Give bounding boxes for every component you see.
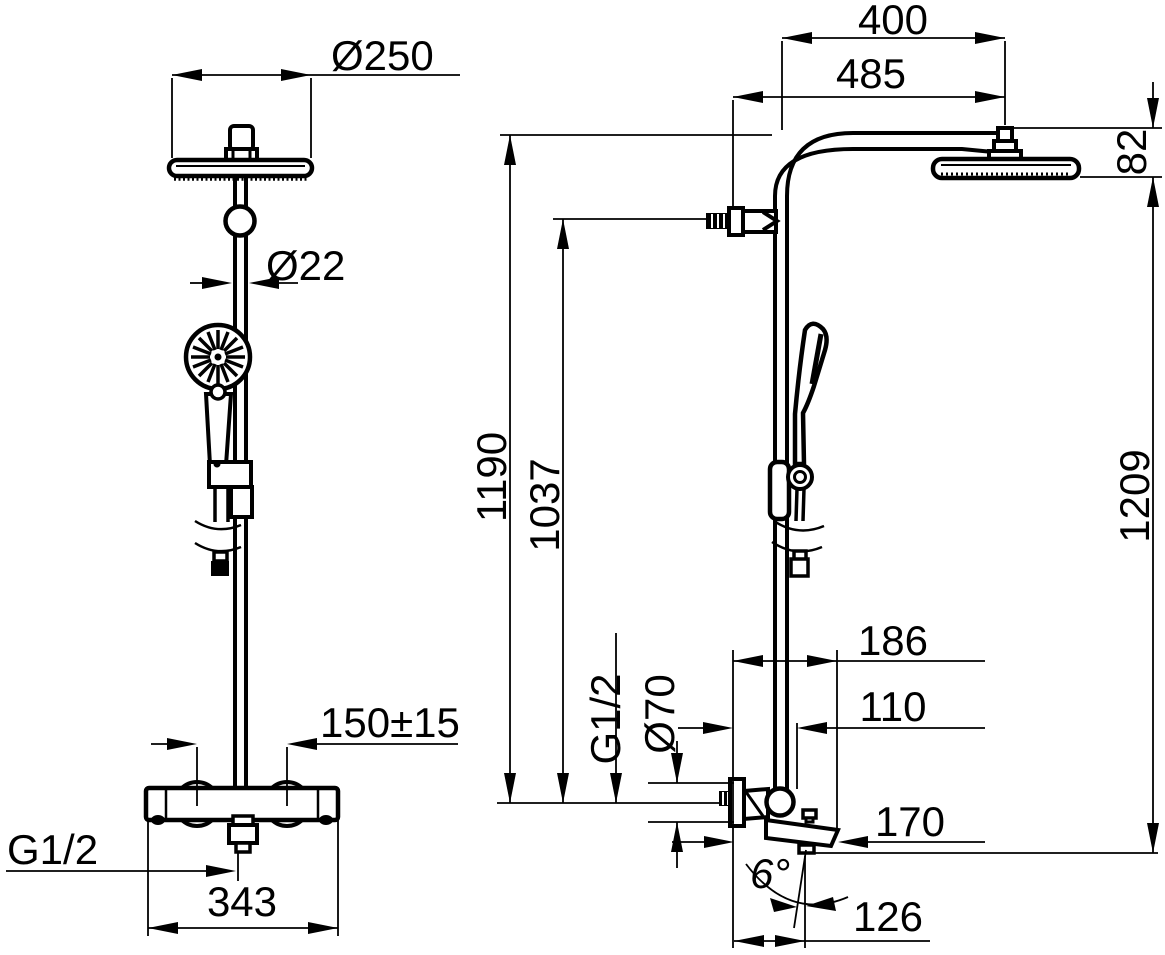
arrowhead	[202, 277, 232, 289]
dim-escutcheon-diameter: Ø70	[636, 674, 734, 868]
arrowhead	[807, 655, 837, 667]
dim-height-total: 1209	[1111, 177, 1159, 853]
dim-spout-angle: 6°	[746, 850, 848, 928]
valve-pipe-joint	[767, 789, 794, 816]
arrowhead	[308, 922, 338, 934]
arrowhead	[281, 69, 311, 81]
dim-arm-projection-total: 485	[733, 50, 1005, 206]
arrowhead	[733, 655, 763, 667]
arrowhead	[797, 722, 827, 734]
hand-shower-handle	[206, 394, 231, 465]
outlet-tip	[236, 843, 250, 852]
dim-spout-angle-label: 6°	[750, 850, 790, 897]
bath-spout	[766, 820, 838, 846]
arrowhead	[733, 91, 763, 103]
dim-height-to-arm-label: 1190	[468, 432, 515, 522]
dim-spout-depth-mid: 110	[678, 683, 985, 789]
dim-outlet-thread-front-label: G1/2	[7, 826, 98, 873]
hose-end-cone-side	[791, 559, 808, 576]
holder-ring-inner	[795, 472, 806, 483]
dim-spout-depth-top-label: 186	[858, 617, 928, 664]
holder-pin	[214, 461, 221, 468]
head-connector	[230, 126, 253, 150]
arrowhead	[671, 822, 683, 852]
shower-head-disc	[169, 160, 312, 176]
dim-escutcheon-diameter-label: Ø70	[636, 674, 683, 753]
mixer-foot	[319, 815, 333, 825]
technical-drawing: Ø250 Ø22 150±15 G1/2 343	[0, 0, 1165, 955]
arrowhead	[703, 722, 733, 734]
holder-bracket-side	[770, 462, 789, 519]
arrowhead	[504, 773, 516, 803]
wall-pipe	[743, 211, 776, 232]
wall-flange	[729, 208, 743, 235]
dim-arm-projection-label: 400	[858, 0, 928, 43]
arrowhead	[167, 738, 197, 750]
arrowhead	[1147, 823, 1159, 853]
arrowhead	[504, 135, 516, 165]
dim-pipe-diameter: Ø22	[190, 242, 345, 289]
dim-height-to-inlet-label: 1037	[521, 458, 568, 551]
mixer-foot	[151, 815, 165, 825]
arrowhead	[975, 32, 1005, 44]
arrowhead	[557, 773, 569, 803]
hose-side	[803, 489, 804, 521]
dim-spout-reach-label: 170	[875, 798, 945, 845]
arrowhead	[975, 91, 1005, 103]
arrowhead	[148, 922, 178, 934]
dim-head-drop-label: 82	[1108, 129, 1155, 176]
dim-head-diameter-label: Ø250	[331, 32, 434, 79]
arrowhead	[1147, 177, 1159, 207]
arrowhead	[671, 753, 683, 783]
arrowhead	[287, 738, 317, 750]
arrowhead	[838, 836, 868, 848]
diverter-stem	[806, 818, 813, 822]
dim-head-diameter: Ø250	[172, 32, 460, 158]
arrowhead	[782, 32, 812, 44]
hose-end-nut	[214, 552, 227, 561]
dim-height-total-label: 1209	[1111, 449, 1158, 542]
holder-slider	[231, 487, 252, 517]
outlet-body	[229, 825, 257, 843]
side-view	[706, 128, 1079, 853]
dim-outlet-thread-front: G1/2	[6, 826, 238, 881]
hose-end-cone	[211, 561, 229, 576]
drawing-canvas: Ø250 Ø22 150±15 G1/2 343	[0, 0, 1165, 955]
ball-joint	[226, 207, 255, 236]
dim-spout-depth-mid-label: 110	[860, 683, 927, 730]
dim-arm-projection-total-label: 485	[836, 50, 906, 97]
arrowhead	[1147, 98, 1159, 128]
dim-pipe-diameter-label: Ø22	[266, 242, 345, 289]
arrowhead	[557, 219, 569, 249]
arrowhead	[610, 773, 622, 803]
dim-inlet-thread-side: G1/2	[582, 633, 629, 803]
hose-break-line	[774, 521, 824, 530]
dim-outlet-offset-label: 126	[853, 893, 923, 940]
spray-center-dot	[215, 354, 222, 361]
hand-shower-side	[795, 324, 827, 464]
arrowhead	[734, 935, 764, 947]
dim-body-width-label: 343	[207, 878, 277, 925]
arrowhead	[704, 836, 734, 848]
arrowhead	[172, 69, 202, 81]
dim-inlet-spacing-label: 150±15	[320, 699, 460, 746]
arrowhead	[775, 935, 805, 947]
arrowhead	[206, 865, 236, 877]
hose-side	[796, 489, 797, 521]
handle-pivot	[211, 385, 225, 399]
dim-inlet-thread-side-label: G1/2	[582, 673, 629, 764]
